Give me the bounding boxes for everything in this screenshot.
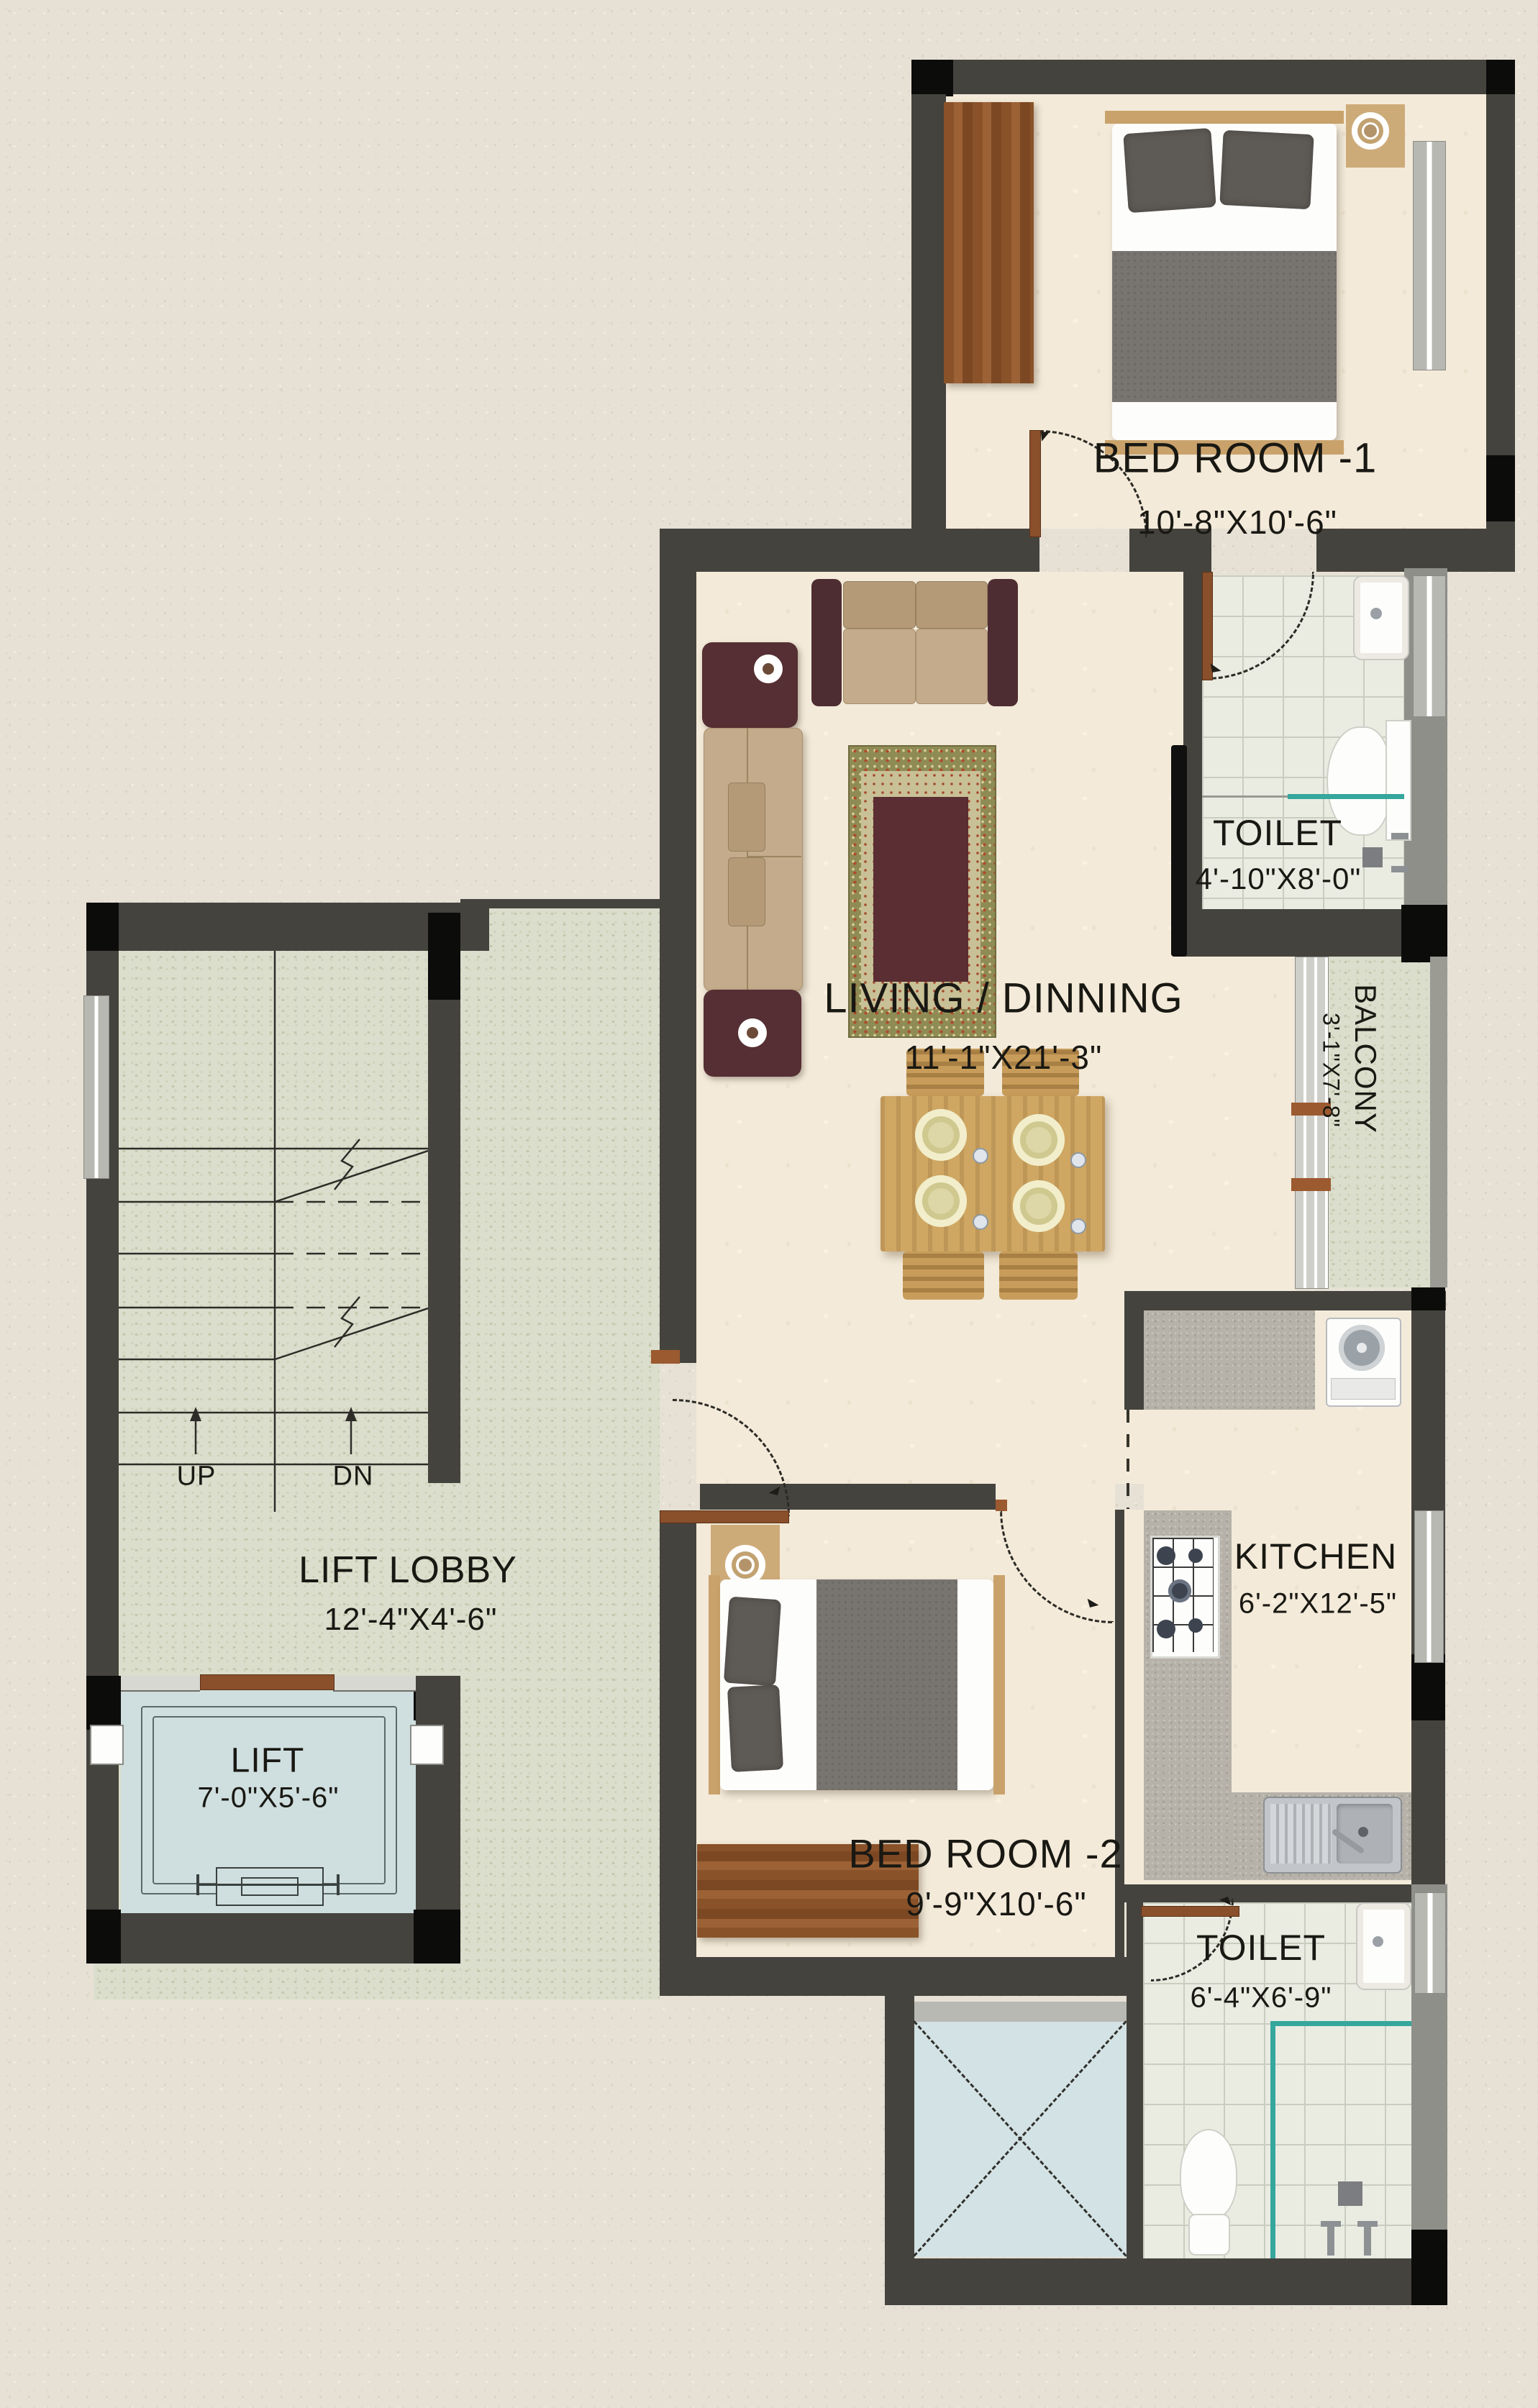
toilet1-shower-partition	[1288, 794, 1404, 799]
kitchen-passage-floor	[996, 1484, 1115, 1510]
column-lobby-topleft	[86, 903, 119, 957]
hob-burner-1	[1157, 1546, 1175, 1565]
sofa-top-seat-1	[843, 629, 916, 704]
toilet2-shower-head	[1338, 2181, 1362, 2206]
toilet2-label: TOILET	[1196, 1927, 1326, 1969]
bedroom1-window	[1413, 141, 1446, 370]
carpet-field	[873, 797, 968, 982]
kitchen-counter-top	[1144, 1310, 1315, 1410]
column-bedroom1-right	[1486, 455, 1515, 521]
lift-counterweight-cap-l	[196, 1874, 199, 1895]
glass-1	[973, 1148, 988, 1164]
column-lift-bottomright	[414, 1910, 460, 1964]
living-label: LIVING / DINNING	[824, 975, 1183, 1023]
sofa-top-arm-left	[811, 579, 842, 706]
hob-burner-4	[1157, 1620, 1175, 1638]
toilet2-sink-drain	[1373, 1936, 1383, 1947]
toilet2-wc-bowl	[1180, 2129, 1237, 2220]
balcony-dims: 3'-1"X7'-8"	[1318, 1013, 1344, 1128]
bedroom2-pillow-2	[727, 1684, 783, 1772]
lift-counterweight-cap-r	[337, 1874, 340, 1895]
bedroom2-dims: 9'-9"X10'-6"	[906, 1884, 1086, 1923]
lift-dims: 7'-0"X5'-6"	[198, 1782, 340, 1815]
column-bottom-right	[1411, 2230, 1447, 2305]
toilet2-door-leaf	[1141, 1906, 1239, 1917]
lift-lobby-label: LIFT LOBBY	[299, 1549, 517, 1592]
lift-call-panel-right	[410, 1725, 444, 1765]
hob-burner-3	[1168, 1579, 1191, 1602]
kitchen-sink-drain	[1358, 1827, 1368, 1837]
wall-duct-left	[885, 1996, 914, 2258]
column-bedroom1-topleft	[911, 60, 953, 96]
bedroom1-dims: 10'-8"X10'-6"	[1137, 503, 1337, 542]
toilet2-tap-1	[1327, 2222, 1334, 2256]
sofa-left-pillow-2	[728, 857, 765, 926]
bedroom2-bed-headboard	[709, 1575, 720, 1794]
column-lift-topleft	[86, 1676, 121, 1730]
lift-counterweight-line	[198, 1884, 339, 1886]
sofa-top-back-1	[843, 581, 916, 629]
bedroom1-door-leaf	[1029, 430, 1041, 537]
kitchen-label: KITCHEN	[1234, 1536, 1397, 1577]
column-bedroom1-topright	[1486, 60, 1515, 96]
side-table-bottom-cup-in	[747, 1027, 758, 1039]
toilet1-tap-1	[1391, 833, 1409, 839]
wall-lift-bottom	[86, 1913, 460, 1964]
wall-band-living-top	[660, 529, 1039, 572]
wall-bedroom2-right	[1115, 1510, 1124, 1957]
wall-apartment-left-lower	[660, 1510, 696, 1957]
kitchen-dims: 6'-2"X12'-5"	[1239, 1588, 1397, 1620]
plate-2	[915, 1175, 967, 1227]
column-toilet1-bottomright	[1401, 905, 1447, 962]
bedroom1-blanket	[1112, 251, 1337, 402]
lift-call-panel-left	[90, 1725, 124, 1765]
wall-bedroom1-top	[911, 60, 1515, 94]
kitchen-window	[1414, 1510, 1444, 1663]
balcony-transom-2	[1291, 1178, 1331, 1191]
kitchen-sink-drainboard	[1270, 1804, 1332, 1864]
hob-burner-5	[1188, 1618, 1203, 1633]
stairs-dn-label: DN	[333, 1461, 374, 1492]
bedroom1-bed-headboard	[1105, 111, 1344, 124]
toilet1-window	[1413, 575, 1446, 717]
washing-machine-hub	[1357, 1343, 1367, 1353]
sofa-top-seat-2	[916, 629, 988, 704]
glass-3	[1070, 1152, 1086, 1168]
lift-door	[200, 1674, 335, 1690]
toilet2-window	[1414, 1892, 1446, 1994]
entrance-jamb-top	[651, 1350, 680, 1364]
lift-front-panel-right	[333, 1676, 416, 1692]
toilet2-dims: 6'-4"X6'-9"	[1191, 1982, 1332, 2015]
bedroom2-bed-footer	[993, 1575, 1005, 1794]
wall-kitchen-left-upper	[1124, 1291, 1144, 1410]
lift-counterweight-inner	[241, 1877, 299, 1896]
bedroom2-label: BED ROOM -2	[848, 1830, 1122, 1877]
column-lift-bottomleft	[86, 1910, 121, 1964]
glass-4	[1070, 1218, 1086, 1234]
duct-lintel	[914, 2002, 1127, 2022]
wall-band-right	[1316, 529, 1515, 572]
bedroom1-pillow-right	[1219, 130, 1314, 209]
bedroom2-lamp-center	[739, 1559, 752, 1572]
wall-kitchen-top	[1124, 1291, 1446, 1310]
balcony-label: BALCONY	[1348, 984, 1383, 1134]
kitchen-open-boundary	[1127, 1410, 1129, 1509]
toilet2-tap-2	[1364, 2222, 1371, 2256]
stairs-up-label: UP	[177, 1461, 217, 1492]
lift-lobby-dims: 12'-4"X4'-6"	[324, 1602, 497, 1638]
bedroom1-label: BED ROOM -1	[1093, 434, 1378, 483]
kitchen-door-jamb	[996, 1500, 1007, 1511]
toilet1-sink	[1353, 575, 1409, 660]
wall-bedroom1-left	[911, 94, 946, 536]
kitchen-passage-floor2	[1124, 1510, 1144, 1884]
sofa-top-arm-right	[988, 579, 1018, 706]
wall-stair-right	[428, 1000, 460, 1483]
toilet2-wc-base	[1188, 2214, 1230, 2256]
wall-bottom	[885, 2258, 1411, 2305]
wall-bedroom2-bottom	[660, 1957, 1127, 1996]
toilet1-wc-tank	[1385, 720, 1411, 841]
sofa-top-back-2	[916, 581, 988, 629]
floor-plan-page: { "plan": { "rooms": { "bedroom1": {"nam…	[0, 0, 1538, 2408]
plate-1	[915, 1109, 967, 1161]
wall-lobby-top-line	[460, 899, 660, 908]
bedroom1-wardrobe	[944, 102, 1034, 383]
toilet2-sink	[1356, 1902, 1411, 1990]
toilet2-shower-partition-v	[1270, 2021, 1275, 2258]
bedroom2-pillow-1	[724, 1597, 781, 1687]
sofa-left-pillow-1	[728, 783, 765, 852]
toilet2-shower-partition-h	[1270, 2021, 1411, 2026]
side-table-top	[702, 642, 798, 728]
wall-apartment-left-upper	[660, 532, 696, 1363]
bedroom1-pillow-left	[1123, 128, 1216, 213]
living-floor-balcony-side	[1183, 957, 1295, 1291]
toilet1-sink-drain	[1370, 608, 1382, 619]
hob-burner-2	[1188, 1549, 1203, 1563]
bedroom1-lamp-center	[1364, 124, 1377, 137]
entrance-door-leaf	[660, 1510, 789, 1523]
plate-3	[1013, 1114, 1065, 1166]
washing-machine-panel	[1331, 1378, 1396, 1400]
wall-balcony-right	[1430, 957, 1447, 1287]
side-table-top-cup-in	[763, 663, 774, 675]
column-stair-topright	[428, 913, 460, 1000]
dining-chair-3	[903, 1251, 984, 1300]
tv	[1171, 745, 1187, 957]
staircase	[119, 951, 428, 1512]
dining-chair-4	[999, 1251, 1078, 1300]
lift-label: LIFT	[231, 1741, 305, 1781]
lift-front-panel-left	[121, 1676, 200, 1692]
living-dims: 11'-1"X21'-3"	[905, 1038, 1103, 1077]
toilet1-dims: 4'-10"X8'-0"	[1196, 862, 1362, 896]
toilet2-tap-2-cap	[1357, 2221, 1378, 2227]
bedroom2-blanket	[816, 1579, 957, 1790]
toilet1-tap-2	[1391, 866, 1409, 872]
toilet2-tap-1-cap	[1321, 2221, 1341, 2227]
plate-4	[1013, 1180, 1065, 1232]
toilet1-label: TOILET	[1213, 812, 1342, 854]
lobby-window	[83, 995, 109, 1179]
column-kitchen-right	[1411, 1654, 1445, 1720]
glass-2	[973, 1214, 988, 1230]
toilet1-shower-head	[1362, 847, 1383, 867]
toilet1-shower-line-grey	[1202, 795, 1288, 798]
wall-toilet2-left	[1127, 1902, 1143, 2258]
